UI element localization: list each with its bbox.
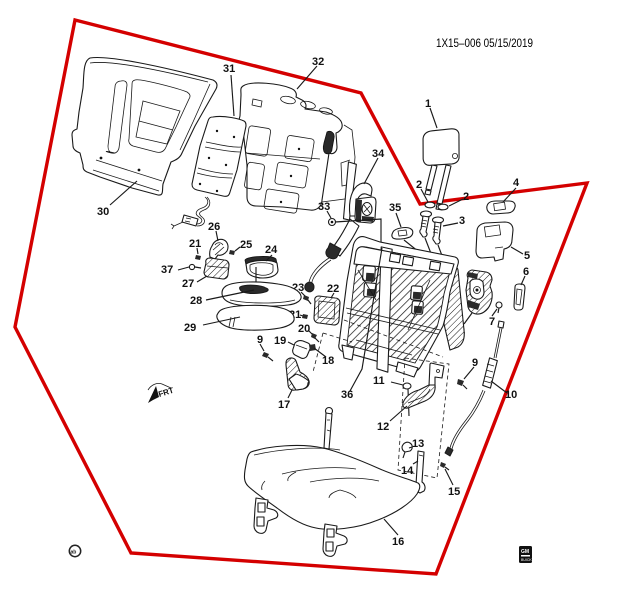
svg-text:6: 6: [523, 266, 529, 278]
svg-text:29: 29: [184, 322, 196, 334]
svg-text:36: 36: [341, 389, 353, 401]
svg-text:12: 12: [377, 421, 389, 433]
svg-text:22: 22: [327, 283, 339, 295]
svg-text:30: 30: [97, 206, 109, 218]
svg-text:31: 31: [223, 63, 235, 75]
svg-text:33: 33: [318, 201, 330, 213]
svg-text:32: 32: [312, 56, 324, 68]
svg-text:1X15–006 05/15/2019: 1X15–006 05/15/2019: [436, 36, 533, 50]
svg-text:BUICK: BUICK: [521, 558, 532, 562]
svg-text:24: 24: [265, 244, 278, 256]
svg-text:7: 7: [489, 316, 495, 328]
svg-text:5: 5: [524, 250, 530, 262]
svg-text:21: 21: [189, 238, 201, 250]
svg-text:9: 9: [472, 357, 478, 369]
svg-text:14: 14: [401, 465, 414, 477]
svg-text:13: 13: [412, 438, 424, 450]
svg-text:37: 37: [161, 264, 173, 276]
svg-text:18: 18: [322, 355, 334, 367]
svg-text:16: 16: [392, 536, 404, 548]
svg-text:4: 4: [513, 177, 520, 189]
svg-text:27: 27: [182, 278, 194, 290]
svg-text:ab: ab: [71, 550, 77, 556]
svg-text:2: 2: [463, 191, 469, 203]
svg-text:17: 17: [278, 399, 290, 411]
svg-text:2: 2: [416, 179, 422, 191]
svg-text:20: 20: [298, 323, 310, 335]
svg-text:1: 1: [425, 98, 431, 110]
svg-text:3: 3: [459, 215, 465, 227]
svg-text:25: 25: [240, 239, 252, 251]
svg-text:35: 35: [389, 202, 401, 214]
svg-text:19: 19: [274, 335, 286, 347]
svg-text:28: 28: [190, 295, 202, 307]
svg-text:9: 9: [257, 334, 263, 346]
svg-text:11: 11: [373, 375, 385, 387]
svg-text:15: 15: [448, 486, 460, 498]
svg-text:GM: GM: [521, 549, 529, 555]
svg-text:26: 26: [208, 221, 220, 233]
svg-text:34: 34: [372, 148, 385, 160]
svg-text:10: 10: [505, 389, 517, 401]
